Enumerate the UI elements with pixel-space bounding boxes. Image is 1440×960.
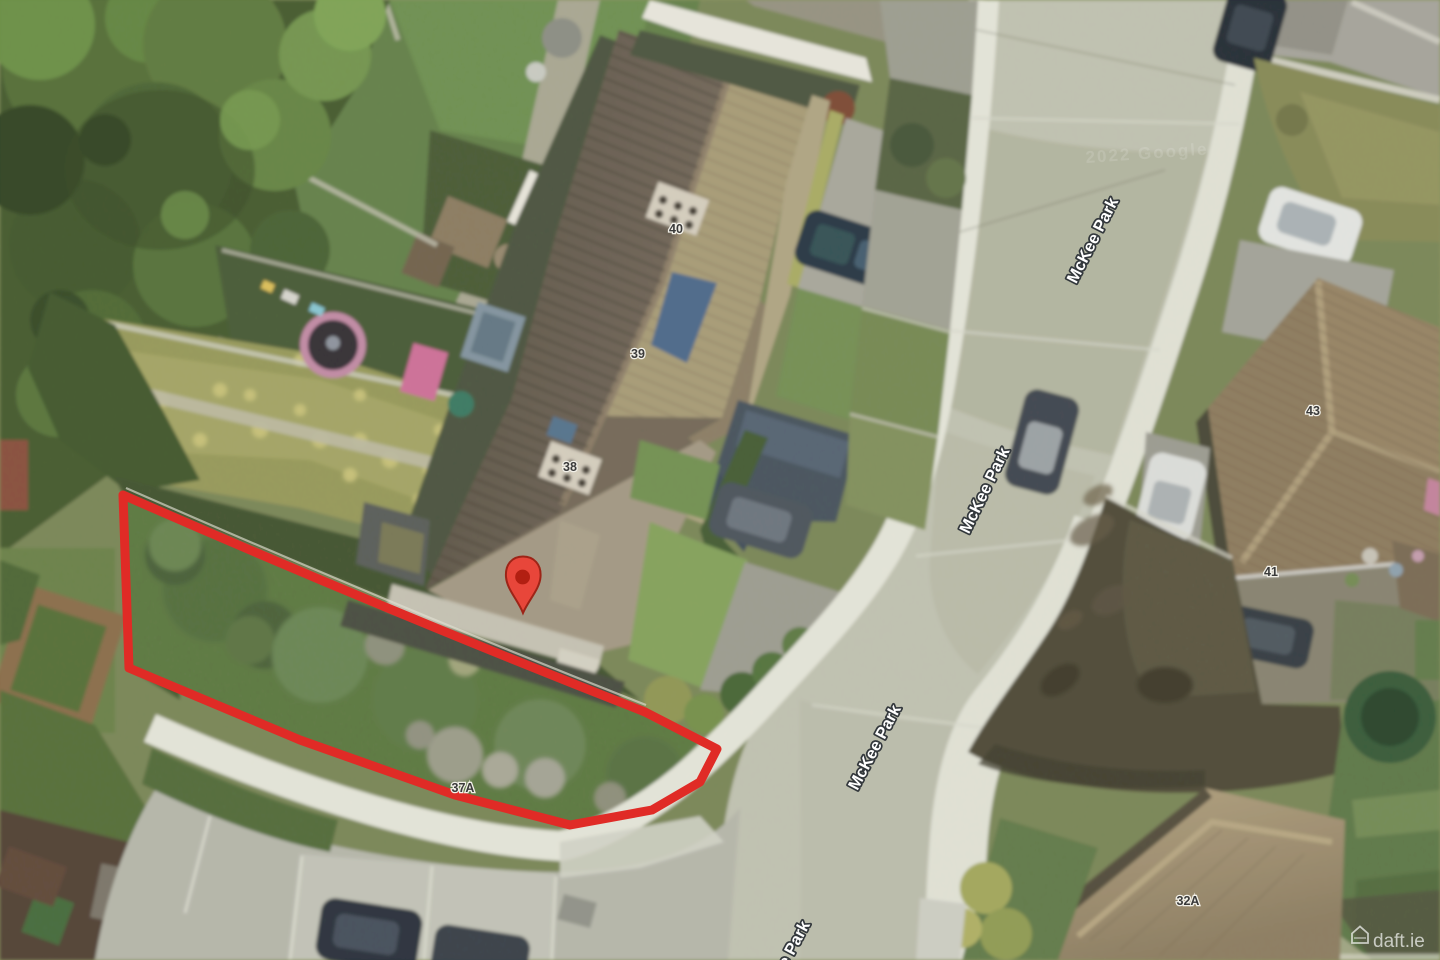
svg-text:37A: 37A bbox=[452, 781, 475, 795]
svg-text:40: 40 bbox=[669, 222, 683, 236]
svg-text:41: 41 bbox=[1264, 565, 1278, 579]
svg-text:38: 38 bbox=[563, 460, 577, 474]
svg-text:43: 43 bbox=[1306, 404, 1320, 418]
svg-text:39: 39 bbox=[631, 347, 645, 361]
svg-text:32A: 32A bbox=[1177, 894, 1200, 908]
svg-text:daft.ie: daft.ie bbox=[1373, 931, 1425, 952]
